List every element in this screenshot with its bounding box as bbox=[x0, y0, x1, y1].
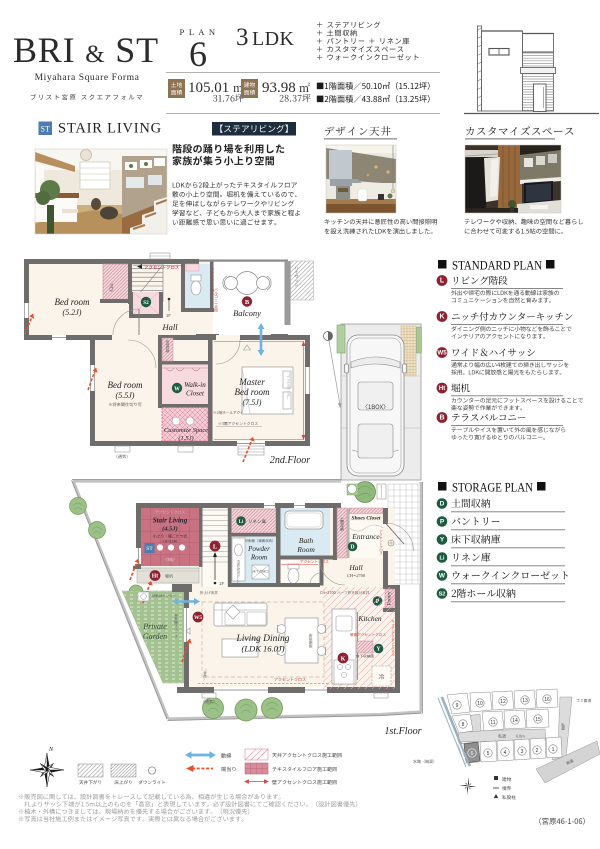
svg-text:BRI & ST: BRI & ST bbox=[13, 30, 159, 70]
svg-text:14: 14 bbox=[512, 718, 518, 724]
svg-text:Bed room: Bed room bbox=[235, 387, 270, 397]
svg-text:L: L bbox=[440, 278, 445, 285]
svg-text:Li: Li bbox=[239, 520, 244, 525]
svg-text:Kitchen: Kitchen bbox=[357, 614, 382, 623]
svg-text:Clo.: Clo. bbox=[109, 282, 115, 291]
svg-text:Hall: Hall bbox=[348, 563, 362, 572]
svg-text:STANDARD PLAN: STANDARD PLAN bbox=[452, 259, 542, 273]
svg-text:STAIR LIVING: STAIR LIVING bbox=[58, 121, 162, 137]
svg-text:D: D bbox=[350, 545, 354, 551]
svg-text:Room: Room bbox=[296, 545, 315, 554]
svg-text:K: K bbox=[341, 655, 346, 662]
svg-text:Pantry: Pantry bbox=[388, 591, 393, 606]
svg-text:Y: Y bbox=[440, 537, 445, 544]
svg-text:Balcony: Balcony bbox=[233, 308, 261, 318]
svg-text:(LDK 16.0J): (LDK 16.0J) bbox=[242, 644, 285, 654]
svg-text:12: 12 bbox=[500, 699, 506, 705]
svg-text:D: D bbox=[440, 501, 445, 508]
svg-text:W5: W5 bbox=[194, 615, 202, 621]
svg-text:1F: 1F bbox=[219, 581, 225, 586]
svg-text:Living Dining: Living Dining bbox=[235, 634, 289, 644]
svg-text:Walk-in: Walk-in bbox=[184, 381, 206, 389]
svg-text:W5: W5 bbox=[437, 350, 447, 357]
svg-text:93.98: 93.98 bbox=[262, 80, 296, 96]
svg-text:P: P bbox=[376, 599, 380, 605]
svg-text:ST: ST bbox=[146, 546, 153, 552]
svg-text:N: N bbox=[48, 747, 54, 753]
svg-text:Li: Li bbox=[440, 556, 445, 562]
svg-text:2: 2 bbox=[536, 748, 539, 754]
svg-text:Customize Space: Customize Space bbox=[164, 427, 208, 434]
svg-text:9: 9 bbox=[456, 703, 459, 709]
svg-text:Hall: Hall bbox=[161, 322, 178, 332]
svg-text:CH=2700: CH=2700 bbox=[347, 573, 366, 578]
svg-text:LDK: LDK bbox=[252, 28, 294, 50]
svg-text:1: 1 bbox=[552, 747, 555, 753]
svg-text:4: 4 bbox=[504, 750, 507, 756]
svg-text:2nd.Floor: 2nd.Floor bbox=[270, 455, 310, 466]
svg-text:Ht: Ht bbox=[152, 574, 159, 580]
svg-text:Bed room: Bed room bbox=[108, 380, 143, 390]
svg-text:6: 6 bbox=[471, 751, 474, 757]
svg-text:Private: Private bbox=[142, 622, 167, 631]
svg-text:Bath: Bath bbox=[299, 536, 313, 545]
svg-text:Shoes Closet: Shoes Closet bbox=[352, 516, 381, 522]
svg-text:S2: S2 bbox=[143, 300, 149, 306]
svg-text:L: L bbox=[213, 544, 218, 551]
svg-text:ST: ST bbox=[41, 125, 50, 134]
svg-text:Master: Master bbox=[238, 377, 265, 387]
svg-text:8: 8 bbox=[462, 722, 465, 728]
svg-text:K: K bbox=[439, 314, 444, 321]
svg-text:5: 5 bbox=[487, 751, 490, 757]
svg-text:Entrance: Entrance bbox=[351, 532, 380, 541]
svg-text:B: B bbox=[439, 415, 444, 422]
svg-text:B: B bbox=[245, 299, 250, 306]
svg-text:1st.Floor: 1st.Floor bbox=[385, 726, 422, 737]
svg-text:Miyahara Square Forma: Miyahara Square Forma bbox=[35, 72, 140, 83]
svg-text:10: 10 bbox=[477, 701, 483, 707]
svg-text:3: 3 bbox=[521, 749, 524, 755]
svg-text:Closet: Closet bbox=[186, 390, 205, 398]
svg-text:1F: 1F bbox=[166, 313, 171, 318]
svg-text:16: 16 bbox=[544, 697, 550, 703]
svg-text:15: 15 bbox=[535, 717, 541, 723]
svg-text:W: W bbox=[439, 573, 446, 580]
svg-text:Garden: Garden bbox=[143, 632, 167, 641]
svg-text:Bed room: Bed room bbox=[55, 297, 90, 307]
svg-text:Room: Room bbox=[250, 554, 267, 562]
svg-text:P: P bbox=[440, 519, 445, 526]
svg-text:(5.5J): (5.5J) bbox=[116, 391, 135, 400]
svg-text:(7.5J): (7.5J) bbox=[243, 398, 262, 407]
svg-text:Powder: Powder bbox=[247, 545, 270, 553]
svg-text:105.01: 105.01 bbox=[188, 80, 229, 96]
svg-text:Ht: Ht bbox=[439, 385, 446, 392]
svg-text:Stair Living: Stair Living bbox=[153, 517, 188, 525]
svg-text:(5.2J): (5.2J) bbox=[63, 308, 82, 317]
svg-text:W: W bbox=[174, 386, 180, 392]
svg-text:13: 13 bbox=[522, 698, 528, 704]
svg-text:STORAGE PLAN: STORAGE PLAN bbox=[452, 481, 533, 495]
svg-text:(4.5J): (4.5J) bbox=[162, 526, 178, 533]
svg-text:3: 3 bbox=[236, 24, 249, 51]
svg-text:11: 11 bbox=[490, 720, 495, 726]
svg-text:6: 6 bbox=[189, 34, 207, 74]
svg-text:S2: S2 bbox=[439, 592, 446, 598]
svg-text:(1.5J): (1.5J) bbox=[178, 435, 193, 442]
